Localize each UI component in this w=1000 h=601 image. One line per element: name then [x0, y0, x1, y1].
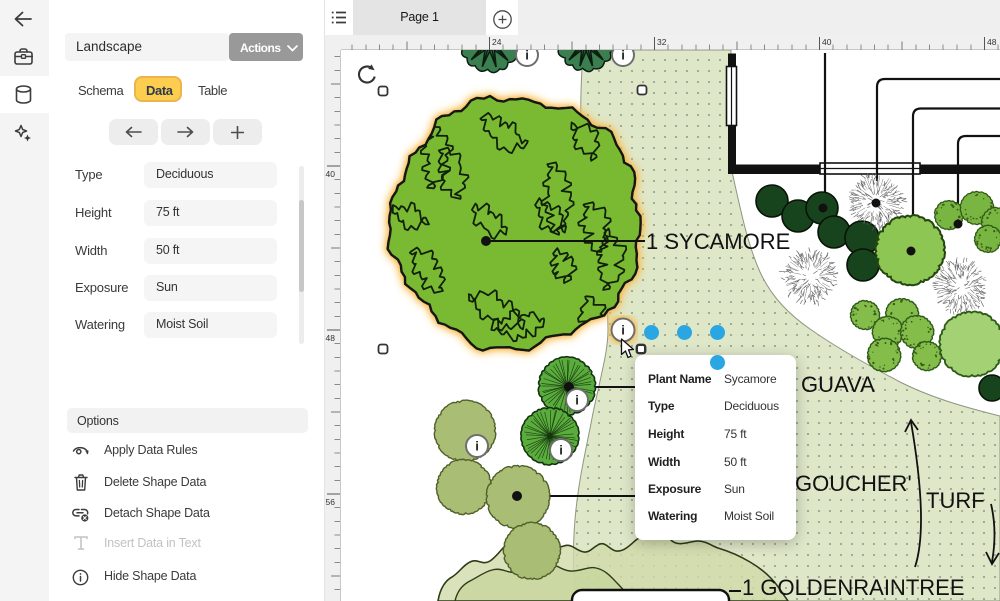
svg-text:40: 40 [326, 169, 336, 179]
svg-text:i: i [575, 393, 579, 408]
svg-text:24: 24 [492, 37, 502, 47]
svg-text:48: 48 [326, 333, 336, 343]
svg-text:i: i [525, 50, 529, 63]
svg-text:GOUCHER': GOUCHER' [795, 471, 912, 496]
svg-text:TURF: TURF [926, 488, 985, 513]
svg-text:i: i [621, 323, 625, 338]
svg-text:GUAVA: GUAVA [801, 372, 875, 397]
svg-text:32: 32 [657, 37, 667, 47]
svg-text:1 SYCAMORE: 1 SYCAMORE [646, 229, 790, 254]
svg-text:i: i [475, 439, 479, 454]
svg-text:48: 48 [987, 37, 997, 47]
svg-text:56: 56 [326, 497, 336, 507]
svg-text:i: i [559, 443, 563, 458]
svg-text:1 GOLDENRAINTREE: 1 GOLDENRAINTREE [742, 575, 965, 600]
svg-text:40: 40 [822, 37, 832, 47]
svg-text:i: i [621, 50, 625, 63]
